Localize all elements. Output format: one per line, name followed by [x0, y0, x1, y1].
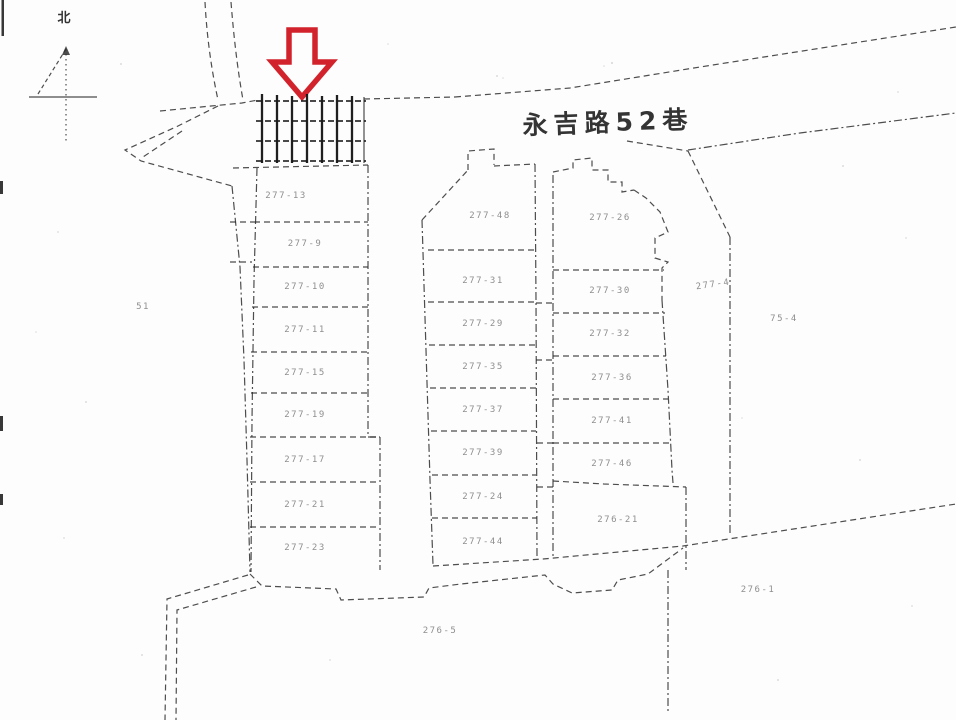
parcel-label: 277-10 — [284, 282, 326, 292]
north-label: 北 — [57, 11, 70, 26]
parcel-label: 277-4 — [695, 278, 731, 293]
scan-edge-marks — [0, 0, 4, 505]
parcel-label: 277-30 — [589, 286, 631, 296]
parcel-label: 277-37 — [462, 405, 504, 415]
east-boundary-lines — [668, 151, 730, 712]
parcel-label: 277-39 — [462, 448, 504, 458]
parcel-label: 277-46 — [591, 459, 633, 469]
parcel-label: 277-35 — [462, 362, 504, 372]
road-lines — [125, 2, 956, 186]
map-labels: 永吉路52巷 51 277-13 277-9 277-10 277-11 277… — [136, 105, 798, 636]
street-label: 永吉路52巷 — [522, 105, 694, 140]
south-boundary-lines — [165, 504, 956, 720]
parcel-label: 277-21 — [284, 500, 326, 510]
parcel-label: 277-32 — [589, 329, 631, 339]
parcel-label: 277-9 — [288, 239, 323, 249]
parcel-label: 277-17 — [284, 455, 326, 465]
parcel-label: 277-26 — [589, 213, 631, 223]
parcel-label: 277-19 — [284, 410, 326, 420]
parcel-label: 276-5 — [423, 626, 458, 636]
red-arrow-icon — [272, 30, 332, 97]
cadastral-map-scan: 北 — [0, 0, 956, 720]
red-arrow-outline — [272, 30, 332, 97]
parcel-label: 277-36 — [591, 373, 633, 383]
parcel-label: 277-13 — [265, 191, 307, 201]
parcel-label: 75-4 — [770, 314, 798, 324]
area-label-left: 51 — [136, 302, 150, 312]
map-canvas: 北 — [0, 0, 956, 720]
north-compass-icon: 北 — [29, 11, 97, 143]
parcel-label: 277-41 — [591, 416, 633, 426]
parcel-label: 277-44 — [462, 537, 504, 547]
parcel-label: 276-21 — [597, 515, 639, 525]
parcel-label: 277-31 — [462, 276, 504, 286]
parcel-label: 277-29 — [462, 319, 504, 329]
parcel-label: 276-1 — [741, 585, 776, 595]
parcel-label: 277-23 — [284, 543, 326, 553]
subject-parcel-hatch — [256, 94, 366, 163]
parcel-label: 277-15 — [284, 368, 326, 378]
parcel-label: 277-11 — [284, 325, 326, 335]
parcel-label: 277-48 — [469, 211, 511, 221]
parcel-label: 277-24 — [462, 492, 504, 502]
